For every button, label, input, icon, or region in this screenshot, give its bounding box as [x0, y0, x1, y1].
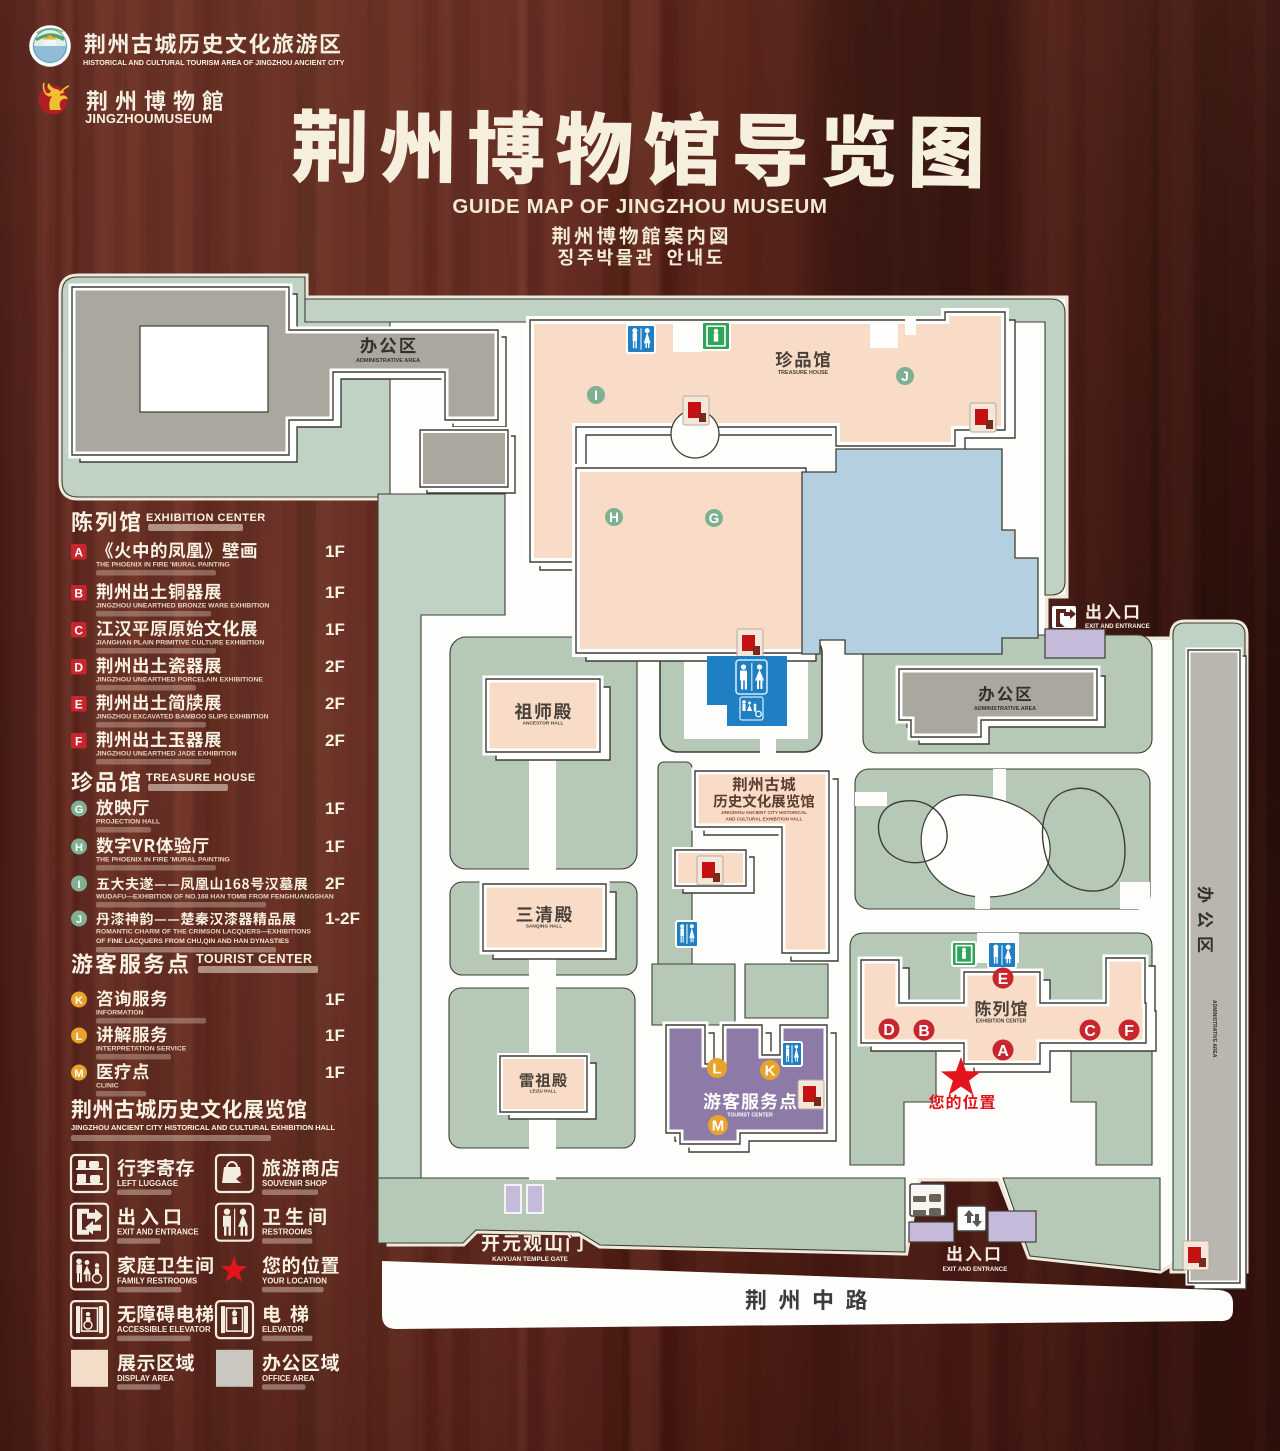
svg-text:TREASURE HOUSE: TREASURE HOUSE [146, 772, 256, 784]
svg-text:2F: 2F [325, 657, 345, 676]
svg-text:ADMINISTRATIVE AREA: ADMINISTRATIVE AREA [356, 358, 420, 364]
svg-text:SANQING HALL: SANQING HALL [526, 924, 563, 930]
svg-text:JINGZHOU UNEARTHED PORCELAIN E: JINGZHOU UNEARTHED PORCELAIN EXHIBITIONE [96, 677, 263, 684]
svg-text:PROJECTION HALL: PROJECTION HALL [96, 819, 160, 826]
svg-text:B: B [918, 1023, 929, 1040]
svg-text:ACCESSIBLE ELEVATOR: ACCESSIBLE ELEVATOR [117, 1325, 211, 1334]
svg-text:EXHIBITION CENTER: EXHIBITION CENTER [146, 512, 266, 524]
svg-text:JINGZHOU ANCIENT CITY HISTORIC: JINGZHOU ANCIENT CITY HISTORICAL AND CUL… [71, 1123, 335, 1132]
svg-text:K: K [75, 995, 83, 1007]
svg-text:ELEVATOR: ELEVATOR [262, 1325, 304, 1334]
svg-text:1F: 1F [325, 837, 345, 856]
svg-text:F: F [1124, 1023, 1134, 1040]
svg-text:1F: 1F [325, 1063, 345, 1082]
svg-text:JINGZHOU UNEARTHED BRONZE WARE: JINGZHOU UNEARTHED BRONZE WARE EXHIBITIO… [96, 603, 269, 610]
svg-text:AND CULTURAL EXHIBITION HALL: AND CULTURAL EXHIBITION HALL [726, 817, 803, 822]
svg-text:DISPLAY AREA: DISPLAY AREA [117, 1374, 174, 1383]
svg-text:E: E [998, 971, 1009, 988]
svg-text:D: D [883, 1022, 894, 1039]
svg-text:RESTROOMS: RESTROOMS [262, 1228, 312, 1237]
svg-text:M: M [74, 1068, 83, 1080]
svg-text:E: E [75, 698, 83, 712]
svg-text:YOUR LOCATION: YOUR LOCATION [262, 1276, 327, 1285]
svg-text:LEFT LUGGAGE: LEFT LUGGAGE [117, 1179, 178, 1188]
svg-text:TOURIST CENTER: TOURIST CENTER [196, 952, 313, 966]
svg-text:TREASURE HOUSE: TREASURE HOUSE [778, 370, 829, 376]
svg-text:2F: 2F [325, 694, 345, 713]
svg-text:H: H [609, 510, 619, 525]
svg-text:SOUVENIR SHOP: SOUVENIR SHOP [262, 1179, 327, 1188]
svg-text:M: M [712, 1118, 725, 1135]
svg-text:EXIT AND ENTRANCE: EXIT AND ENTRANCE [1085, 623, 1150, 630]
svg-text:1F: 1F [325, 990, 345, 1009]
svg-text:1F: 1F [325, 542, 345, 561]
svg-text:G: G [75, 804, 84, 816]
svg-text:OF FINE LACQUERS FROM CHU,QIN: OF FINE LACQUERS FROM CHU,QIN AND HAN DY… [96, 938, 290, 945]
svg-text:C: C [1084, 1023, 1095, 1040]
svg-text:JINGZHOU EXCAVATED BAMBOO SLIP: JINGZHOU EXCAVATED BAMBOO SLIPS EXHIBITI… [96, 714, 269, 721]
svg-text:GUIDE MAP OF JINGZHOU MUSEUM: GUIDE MAP OF JINGZHOU MUSEUM [452, 195, 827, 218]
svg-text:1-2F: 1-2F [325, 909, 360, 928]
svg-text:D: D [74, 661, 83, 675]
svg-text:2F: 2F [325, 731, 345, 750]
svg-text:EXIT AND ENTRANCE: EXIT AND ENTRANCE [943, 1266, 1008, 1273]
svg-text:G: G [709, 511, 720, 526]
svg-text:JINGZHOU ANCIENT CITY HISTORIC: JINGZHOU ANCIENT CITY HISTORICAL [721, 810, 807, 815]
svg-text:TOURIST CENTER: TOURIST CENTER [727, 1113, 773, 1119]
svg-text:JIANGHAN PLAIN PRIMITIVE CULTU: JIANGHAN PLAIN PRIMITIVE CULTURE EXHIBIT… [96, 640, 264, 647]
svg-text:1F: 1F [325, 799, 345, 818]
svg-text:INTERPRETATION SERVICE: INTERPRETATION SERVICE [96, 1046, 187, 1053]
svg-text:K: K [765, 1063, 776, 1080]
svg-text:FAMILY RESTROOMS: FAMILY RESTROOMS [117, 1276, 197, 1285]
svg-text:J: J [901, 369, 909, 384]
svg-text:2F: 2F [325, 874, 345, 893]
svg-text:EXIT AND ENTRANCE: EXIT AND ENTRANCE [117, 1228, 199, 1237]
svg-text:OFFICE AREA: OFFICE AREA [262, 1374, 315, 1383]
svg-text:EXHIBITION CENTER: EXHIBITION CENTER [976, 1019, 1027, 1025]
svg-text:LEIZU HALL: LEIZU HALL [530, 1089, 557, 1094]
svg-text:ANCESTOR HALL: ANCESTOR HALL [523, 721, 564, 727]
svg-text:WUDAFU—EXHIBITION OF NO.168 HA: WUDAFU—EXHIBITION OF NO.168 HAN TOMB FRO… [96, 894, 334, 901]
svg-text:ADMINISTRATIVE AREA: ADMINISTRATIVE AREA [974, 706, 1036, 712]
svg-text:C: C [74, 624, 83, 638]
svg-text:1F: 1F [325, 620, 345, 639]
svg-text:1F: 1F [325, 583, 345, 602]
svg-text:THE PHOENIX IN FIRE 'MURAL PAI: THE PHOENIX IN FIRE 'MURAL PAINTING [96, 562, 230, 569]
svg-text:J: J [76, 914, 82, 926]
svg-text:B: B [74, 587, 83, 601]
svg-text:I: I [77, 879, 80, 891]
svg-text:INFORMATION: INFORMATION [96, 1010, 144, 1017]
svg-text:HISTORICAL AND CULTURAL TOURIS: HISTORICAL AND CULTURAL TOURISM AREA OF … [83, 58, 345, 67]
svg-text:ADMINISTRATIVE AREA: ADMINISTRATIVE AREA [1211, 1000, 1217, 1058]
svg-text:F: F [75, 735, 82, 749]
svg-text:1F: 1F [325, 1026, 345, 1045]
svg-text:JINGZHOUMUSEUM: JINGZHOUMUSEUM [85, 111, 213, 126]
svg-text:H: H [75, 842, 83, 854]
svg-text:KAIYUAN TEMPLE GATE: KAIYUAN TEMPLE GATE [492, 1256, 569, 1263]
svg-text:I: I [594, 388, 598, 403]
svg-text:L: L [76, 1031, 83, 1043]
svg-text:A: A [74, 546, 83, 560]
svg-text:A: A [997, 1043, 1008, 1060]
svg-text:L: L [712, 1061, 721, 1078]
svg-text:ROMANTIC CHARM OF THE CRIMSON: ROMANTIC CHARM OF THE CRIMSON LACQUERS—E… [96, 929, 311, 936]
svg-text:JINGZHOU UNEARTHED JADE EXHIBI: JINGZHOU UNEARTHED JADE EXHIBITION [96, 751, 237, 758]
svg-text:CLINIC: CLINIC [96, 1083, 119, 1090]
svg-text:THE PHOENIX IN FIRE 'MURAL PAI: THE PHOENIX IN FIRE 'MURAL PAINTING [96, 857, 230, 864]
